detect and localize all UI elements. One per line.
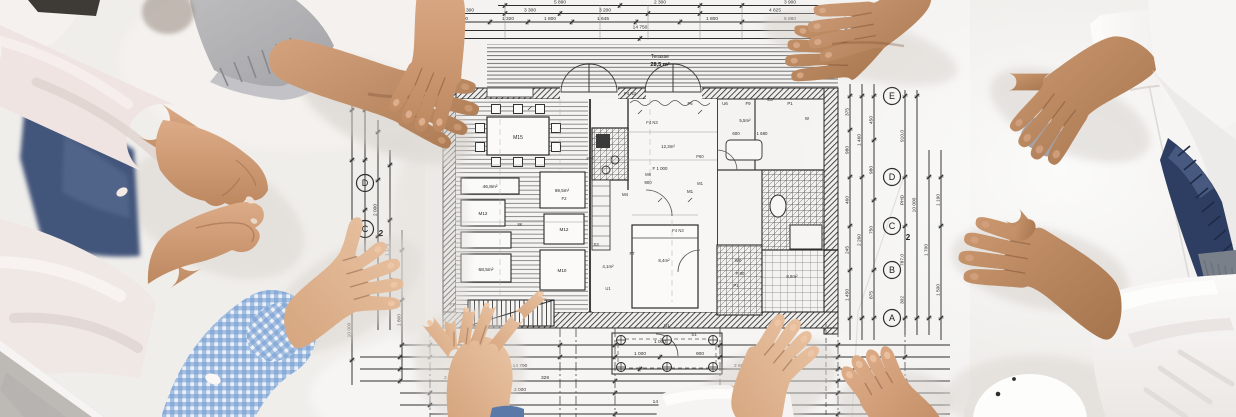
svg-text:U1: U1 <box>605 286 611 291</box>
svg-text:M10: M10 <box>558 268 567 273</box>
svg-text:8K: 8K <box>517 222 522 227</box>
svg-text:1 680: 1 680 <box>757 131 769 136</box>
svg-text:F7: F7 <box>629 251 635 256</box>
svg-text:14 750: 14 750 <box>633 25 648 31</box>
svg-text:F9: F9 <box>745 101 751 106</box>
svg-text:M1: M1 <box>697 181 703 186</box>
svg-text:M1: M1 <box>687 189 694 194</box>
svg-text:2 300: 2 300 <box>654 0 666 6</box>
svg-text:1 700: 1 700 <box>924 244 930 256</box>
svg-text:F4 N3: F4 N3 <box>624 91 637 96</box>
svg-text:980: 980 <box>845 146 851 154</box>
svg-text:F4 N3: F4 N3 <box>646 120 658 125</box>
svg-text:2: 2 <box>379 229 384 238</box>
svg-text:1 190: 1 190 <box>936 194 942 206</box>
svg-text:1 000: 1 000 <box>634 351 646 357</box>
svg-text:900: 900 <box>644 180 652 185</box>
svg-text:S3: S3 <box>593 242 599 247</box>
svg-text:U1: U1 <box>664 323 670 328</box>
svg-text:S1: S1 <box>691 332 697 337</box>
svg-text:3 300: 3 300 <box>524 8 536 14</box>
svg-text:800: 800 <box>587 156 595 161</box>
svg-text:F2: F2 <box>561 196 567 201</box>
svg-text:3 900: 3 900 <box>784 0 796 6</box>
svg-text:3 200: 3 200 <box>599 8 611 14</box>
svg-text:PHD: PHD <box>900 194 906 205</box>
svg-text:2: 2 <box>906 233 911 242</box>
svg-text:12,3m²: 12,3m² <box>661 144 675 149</box>
svg-text:328: 328 <box>541 375 549 381</box>
svg-text:W0: W0 <box>735 258 742 263</box>
svg-text:1 500: 1 500 <box>936 284 942 296</box>
svg-text:U6: U6 <box>722 101 728 106</box>
svg-text:P 80: P 80 <box>736 271 746 276</box>
svg-text:F 1 000: F 1 000 <box>653 166 668 171</box>
svg-text:4,1m²: 4,1m² <box>602 264 614 269</box>
svg-text:M6: M6 <box>645 172 651 177</box>
svg-text:F4 N3: F4 N3 <box>672 228 684 233</box>
svg-text:302: 302 <box>900 296 906 304</box>
svg-text:8,4m²: 8,4m² <box>658 258 670 263</box>
svg-text:1 800: 1 800 <box>706 16 718 22</box>
svg-text:980: 980 <box>869 166 875 174</box>
svg-text:B: B <box>889 265 895 275</box>
svg-text:875: 875 <box>869 291 875 299</box>
svg-text:M15: M15 <box>513 135 523 141</box>
svg-text:C: C <box>362 224 369 234</box>
svg-text:750: 750 <box>869 226 875 234</box>
svg-text:1 800: 1 800 <box>544 16 556 22</box>
svg-text:10 000: 10 000 <box>912 197 918 212</box>
svg-text:2 260: 2 260 <box>857 234 863 246</box>
svg-text:5,5m²: 5,5m² <box>739 118 751 123</box>
svg-text:1 450: 1 450 <box>845 289 851 301</box>
svg-text:M12: M12 <box>560 227 569 232</box>
svg-text:2 000: 2 000 <box>373 204 379 216</box>
svg-text:P1: P1 <box>733 283 739 288</box>
svg-text:450: 450 <box>869 116 875 124</box>
svg-text:68,5m²: 68,5m² <box>479 267 494 273</box>
svg-text:M12: M12 <box>479 211 488 216</box>
svg-text:460: 460 <box>845 196 851 204</box>
svg-text:46,8m²: 46,8m² <box>483 184 498 190</box>
svg-text:1 320: 1 320 <box>502 16 514 22</box>
svg-text:5 880: 5 880 <box>554 0 566 6</box>
svg-text:787,0: 787,0 <box>900 254 906 266</box>
svg-text:300: 300 <box>466 8 474 14</box>
svg-text:E3: E3 <box>767 97 773 102</box>
svg-text:P1: P1 <box>787 101 793 106</box>
svg-text:1 460: 1 460 <box>857 134 863 146</box>
svg-text:D: D <box>362 178 369 188</box>
svg-text:900: 900 <box>696 351 704 357</box>
svg-text:910,0: 910,0 <box>900 130 906 142</box>
svg-text:M4: M4 <box>622 192 629 197</box>
svg-text:C: C <box>889 221 896 231</box>
svg-text:600: 600 <box>732 131 740 136</box>
svg-text:Terasse: Terasse <box>651 54 669 60</box>
svg-text:8,8m²: 8,8m² <box>786 274 798 279</box>
svg-text:F6: F6 <box>687 101 693 106</box>
svg-text:69,5m²: 69,5m² <box>555 188 570 193</box>
svg-text:245: 245 <box>845 246 851 254</box>
svg-text:A: A <box>889 313 895 323</box>
svg-text:E: E <box>889 91 895 101</box>
svg-text:375: 375 <box>845 108 851 116</box>
svg-text:1 000: 1 000 <box>654 339 666 345</box>
svg-text:1 645: 1 645 <box>597 16 609 22</box>
svg-text:P60: P60 <box>696 154 704 159</box>
svg-text:D: D <box>889 172 896 182</box>
